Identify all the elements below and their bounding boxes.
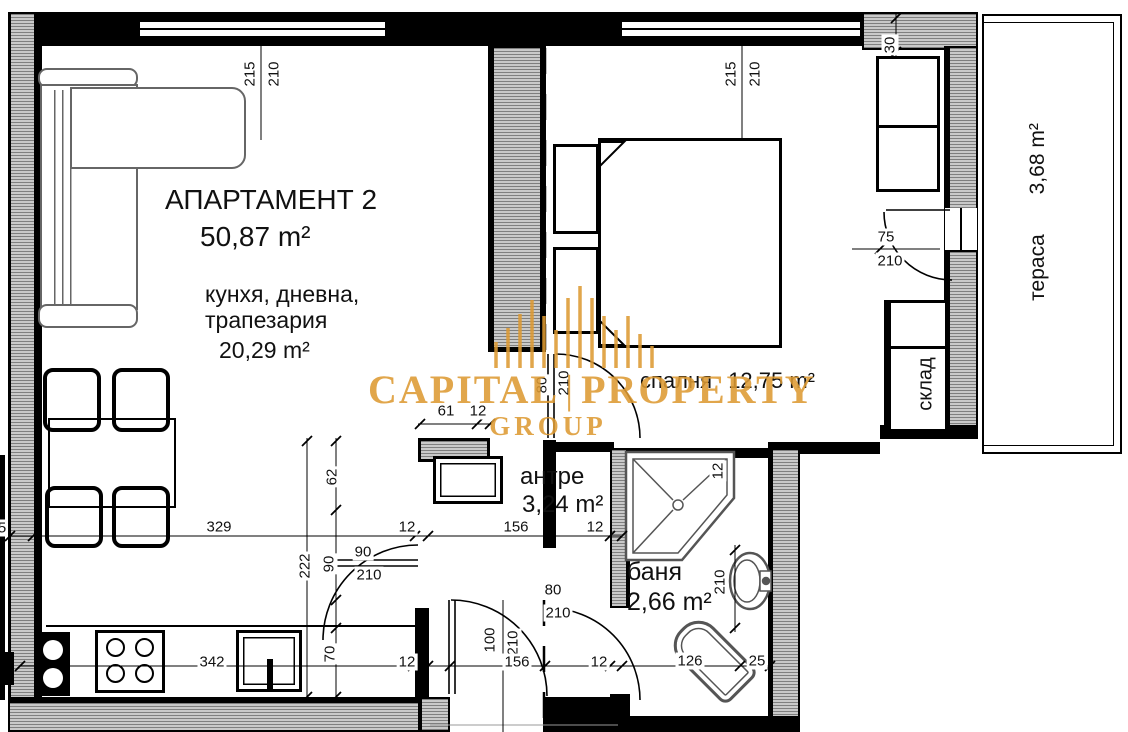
watermark-text-row: CAPITAL|PROPERTY bbox=[368, 370, 788, 410]
hall-area: 3,24 m² bbox=[522, 491, 603, 519]
dimension-label: 156 bbox=[502, 654, 531, 671]
dimension-label: 90 bbox=[321, 554, 338, 575]
washbasin-icon bbox=[730, 553, 771, 609]
storage-label: склад bbox=[915, 357, 938, 410]
bath-label: баня bbox=[627, 558, 682, 587]
terrace-area: 3,68 m² bbox=[1026, 123, 1049, 194]
terrace-label: тераса 3,68 m² bbox=[1026, 123, 1050, 301]
bath-area: 2,66 m² bbox=[627, 588, 712, 617]
watermark-word-capital: CAPITAL bbox=[368, 367, 559, 412]
dimension-label: 90 bbox=[353, 544, 374, 561]
dimension-label: 75 bbox=[876, 229, 897, 246]
dimension-label: 210 bbox=[875, 253, 904, 270]
living-room-label-2: трапезария bbox=[205, 307, 327, 334]
dimension-label: 25 bbox=[747, 653, 768, 670]
dimension-label: 215 bbox=[242, 59, 259, 88]
watermark-word-group: GROUP bbox=[308, 411, 788, 442]
dimension-label: 12 bbox=[710, 461, 727, 482]
dimension-label: 100 bbox=[482, 625, 499, 654]
watermark-logo-icon bbox=[492, 286, 662, 368]
dimension-label: 12 bbox=[589, 654, 610, 671]
watermark: CAPITAL|PROPERTY GROUP bbox=[368, 286, 788, 442]
dimension-label: 70 bbox=[322, 644, 339, 665]
hall-label: антре bbox=[520, 463, 584, 491]
terrace-name: тераса bbox=[1026, 234, 1049, 301]
dimension-label: 210 bbox=[712, 567, 729, 596]
dimension-label: 12 bbox=[585, 519, 606, 536]
dimension-label: 222 bbox=[297, 551, 314, 580]
dimension-label: 210 bbox=[543, 605, 572, 622]
dimension-label: 215 bbox=[723, 59, 740, 88]
living-room-area: 20,29 m² bbox=[219, 337, 310, 364]
dimension-label: 210 bbox=[354, 567, 383, 584]
dimension-label: 156 bbox=[501, 519, 530, 536]
apartment-area: 50,87 m² bbox=[200, 221, 311, 253]
floor-plan: АПАРТАМЕНТ 2 50,87 m² кунхя, дневна, тра… bbox=[0, 0, 1128, 732]
dimension-label: 5 bbox=[0, 520, 8, 537]
dimension-label: 210 bbox=[747, 59, 764, 88]
dimension-label: 342 bbox=[197, 654, 226, 671]
dimension-label: 80 bbox=[543, 582, 564, 599]
dimension-label: 210 bbox=[266, 59, 283, 88]
watermark-word-property: PROPERTY bbox=[581, 367, 816, 412]
dimension-label: 12 bbox=[397, 654, 418, 671]
dimension-label: 30 bbox=[882, 35, 899, 56]
dimension-label: 126 bbox=[675, 653, 704, 670]
living-room-label-1: кунхя, дневна, bbox=[205, 281, 359, 308]
dimension-label: 329 bbox=[204, 519, 233, 536]
apartment-title: АПАРТАМЕНТ 2 bbox=[165, 184, 377, 216]
dimension-label: 62 bbox=[324, 467, 341, 488]
dimension-label: 12 bbox=[397, 519, 418, 536]
watermark-separator: | bbox=[559, 367, 581, 412]
